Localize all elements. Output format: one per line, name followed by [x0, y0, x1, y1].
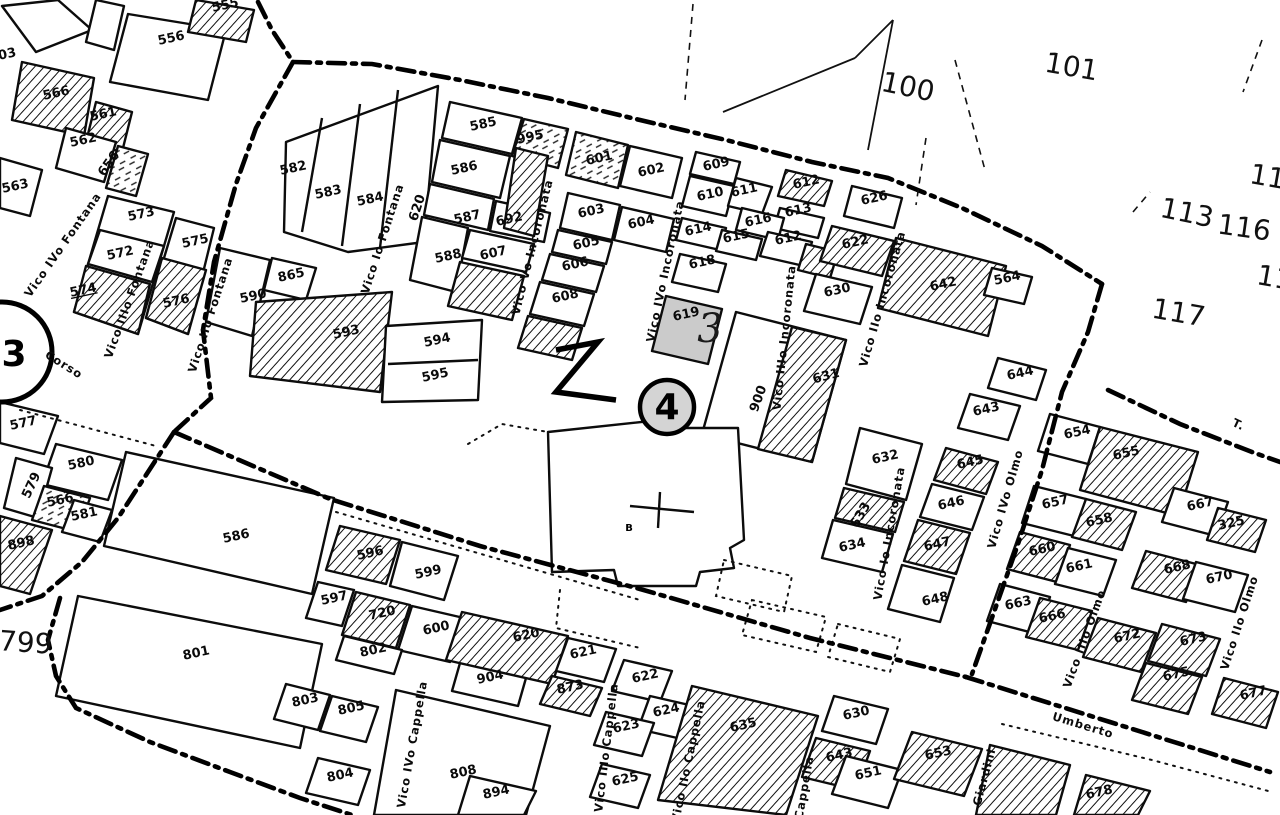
parcel-shape — [250, 292, 392, 392]
cadastral-map: 343B 55555603566561562656563573572575574… — [0, 0, 1280, 815]
map-canvas: 343B 55555603566561562656563573572575574… — [0, 0, 1280, 815]
area-number: 11 — [1247, 157, 1280, 196]
area-number: 11 — [1254, 258, 1280, 297]
building-letter-label: B — [625, 523, 633, 534]
circled-number-3-label: 3 — [1, 334, 26, 375]
parcel-shape — [548, 420, 744, 586]
circled-number-4-label: 4 — [654, 387, 679, 428]
area-number: 799 — [0, 624, 53, 661]
italic-annotation-3: 3 — [697, 306, 722, 352]
